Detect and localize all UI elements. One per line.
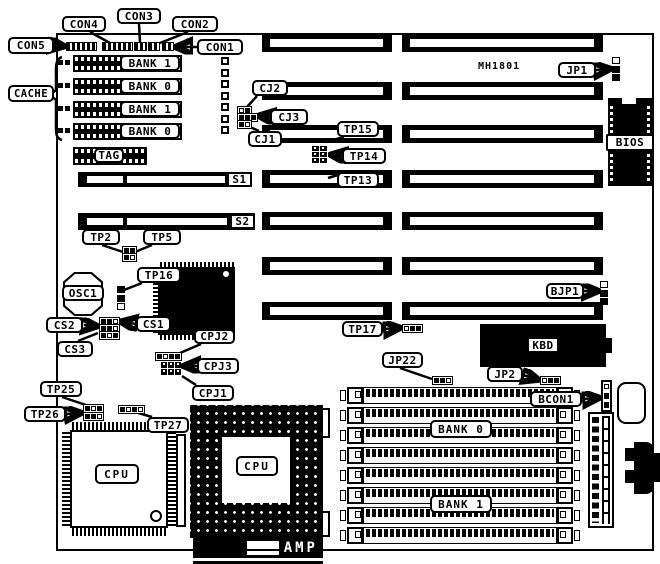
bios-notch — [622, 98, 636, 104]
tp2-tp5-jumper-row2 — [122, 253, 137, 262]
con4-header — [102, 42, 133, 51]
label-cpj1: CPJ1 — [192, 385, 234, 401]
label-cj3: CJ3 — [270, 109, 308, 125]
cpu-qfp-pins-right — [168, 432, 176, 526]
motherboard-diagram: { "diagram": { "type": "motherboard-layo… — [0, 0, 660, 564]
con1-pad — [221, 126, 229, 134]
label-cj2: CJ2 — [252, 80, 288, 96]
cpu-qfp-pin1-circle — [150, 510, 162, 522]
jp2-jumper — [540, 376, 561, 385]
chipset-marking: MH1801 — [478, 61, 520, 72]
s2-slot: S2 — [78, 213, 255, 230]
s1-slot: S1 — [78, 172, 252, 187]
isa-slot-long — [402, 125, 603, 143]
con3-header — [134, 42, 147, 51]
label-con1: CON1 — [197, 39, 243, 55]
jp22-jumper — [432, 376, 453, 385]
con1-header — [162, 42, 174, 51]
s1-key — [87, 176, 123, 183]
amp-key1 — [247, 541, 279, 549]
cache-bank1-label: BANK 1 — [120, 55, 180, 71]
s1-label: S1 — [227, 172, 252, 187]
capacitors — [58, 128, 70, 133]
label-con4: CON4 — [62, 16, 106, 32]
tp27-jumper — [118, 405, 145, 414]
din-connector-plug — [653, 453, 660, 482]
cpu-qfp-label: CPU — [95, 464, 139, 484]
tp17-jumper — [402, 324, 423, 333]
cpu-qfp-pins-left — [62, 432, 70, 526]
label-con3: CON3 — [117, 8, 161, 24]
tp14-pin-block — [312, 146, 327, 163]
tag-label: TAG — [94, 148, 124, 163]
simm-socket-5 — [340, 467, 580, 484]
label-tp5: TP5 — [143, 229, 181, 245]
isa-slot-short — [262, 34, 392, 52]
cj-jumper-row3 — [237, 120, 252, 129]
cache-bank0b-label: BANK 0 — [120, 123, 180, 139]
bios-label: BIOS — [606, 134, 654, 151]
label-con2: CON2 — [172, 16, 218, 32]
con1-pad — [221, 80, 229, 88]
con1-pad — [221, 69, 229, 77]
din-connector-tab1 — [625, 448, 635, 461]
s2-key — [87, 218, 123, 225]
label-cpj3: CPJ3 — [197, 358, 239, 374]
memory-bank0-label: BANK 0 — [430, 420, 492, 438]
label-cache: CACHE — [8, 85, 54, 102]
bcon1-header — [601, 380, 612, 412]
socket-tab-top — [321, 408, 330, 438]
label-tp14: TP14 — [342, 148, 386, 164]
kbd-chip-tab — [604, 338, 612, 353]
simm-socket-4 — [340, 447, 580, 464]
label-con5: CON5 — [8, 37, 54, 54]
simm-socket-8 — [340, 527, 580, 544]
isa-slot-short — [262, 302, 392, 320]
con2-header — [148, 42, 160, 51]
cache-bank1b-label: BANK 1 — [120, 101, 180, 117]
label-cj1: CJ1 — [248, 131, 282, 147]
isa-slot-long — [402, 82, 603, 100]
capacitors — [58, 60, 70, 65]
battery — [617, 382, 646, 424]
label-jp2: JP2 — [487, 366, 523, 382]
power-connector — [588, 412, 614, 528]
cache-bank0-label: BANK 0 — [120, 78, 180, 94]
cpu-pga-label: CPU — [236, 456, 278, 476]
label-jp1: JP1 — [558, 62, 596, 78]
jp1-jumper — [612, 57, 620, 81]
amp-key2 — [247, 551, 279, 555]
label-tp17: TP17 — [342, 321, 383, 337]
tp16-jumper — [117, 286, 125, 310]
isa-slot-long — [402, 34, 603, 52]
label-bcon1: BCON1 — [530, 391, 582, 407]
isa-slot-long — [402, 212, 603, 230]
label-bjp1: BJP1 — [546, 283, 584, 299]
con1-pad — [221, 115, 229, 123]
label-tp25: TP25 — [40, 381, 82, 397]
label-cs1: CS1 — [136, 316, 171, 332]
cpj3-jumper-row — [155, 352, 182, 361]
con1-pad — [221, 57, 229, 65]
cs-jumper-row3 — [99, 331, 120, 340]
kbd-label: KBD — [527, 337, 559, 353]
label-jp22: JP22 — [382, 352, 423, 368]
isa-slot-long — [402, 257, 603, 275]
bjp1-jumper — [600, 281, 608, 305]
label-cs2: CS2 — [46, 317, 83, 333]
tp25-jumper-row2 — [83, 412, 104, 421]
isa-slot-short — [262, 212, 392, 230]
isa-slot-long — [402, 170, 603, 188]
socket-tab-bottom — [321, 511, 330, 537]
label-tp2: TP2 — [82, 229, 120, 245]
cpu-qfp-pins-bottom — [72, 528, 166, 536]
isa-slot-long — [402, 302, 603, 320]
con5-header — [66, 42, 97, 51]
capacitors — [58, 83, 70, 88]
cpj-pin-block — [161, 362, 181, 375]
s2-contact — [127, 218, 227, 225]
label-tp15: TP15 — [337, 121, 379, 137]
label-tp26: TP26 — [24, 406, 66, 422]
isa-slot-short — [262, 257, 392, 275]
label-tp13: TP13 — [337, 172, 379, 188]
label-cpj2: CPJ2 — [194, 329, 235, 344]
label-tp27: TP27 — [147, 417, 189, 433]
memory-bank1-label: BANK 1 — [430, 495, 492, 513]
amp-connector: AMP — [193, 538, 323, 558]
din-connector-tab2 — [625, 470, 635, 483]
header-bar — [176, 434, 186, 527]
s2-label: S2 — [230, 214, 255, 229]
s1-contact — [127, 176, 225, 183]
capacitors — [58, 106, 70, 111]
label-cs3: CS3 — [57, 341, 93, 357]
label-tp16: TP16 — [137, 267, 181, 283]
chipset-pin1-dot — [223, 271, 229, 277]
con1-pad — [221, 92, 229, 100]
con1-pad — [221, 103, 229, 111]
din-keyboard-connector — [634, 442, 654, 494]
amp-label: AMP — [284, 540, 318, 556]
osc1-label: OSC1 — [62, 285, 104, 301]
